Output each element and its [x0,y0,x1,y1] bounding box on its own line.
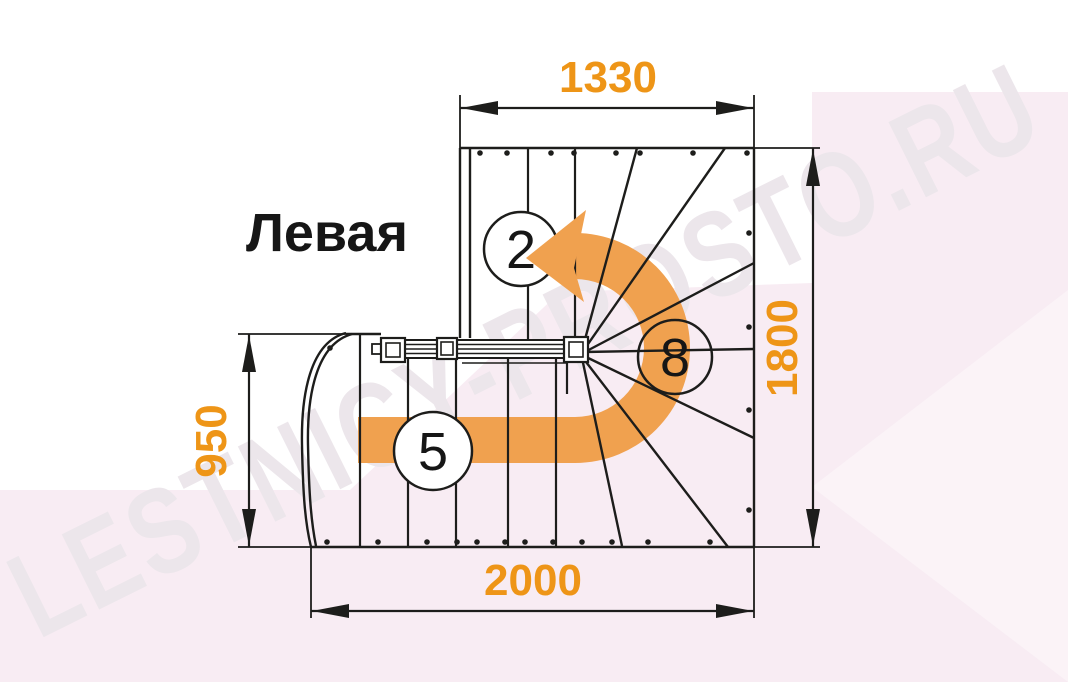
winder-count: 8 [660,328,690,388]
dimension-left-value: 950 [187,404,236,477]
upper-flight-count: 2 [506,220,536,280]
dimension-right-value: 1800 [758,299,807,397]
dimension-bottom-value: 2000 [484,556,582,605]
plan-title: Левая [246,203,408,263]
stair-plan-diagram: LESTNICY-PROSTO.RU [0,0,1068,682]
rail-notch [372,344,381,354]
plan-canvas: LESTNICY-PROSTO.RU [0,0,1068,682]
lower-flight-count: 5 [418,422,448,482]
dimension-top-value: 1330 [559,53,657,102]
